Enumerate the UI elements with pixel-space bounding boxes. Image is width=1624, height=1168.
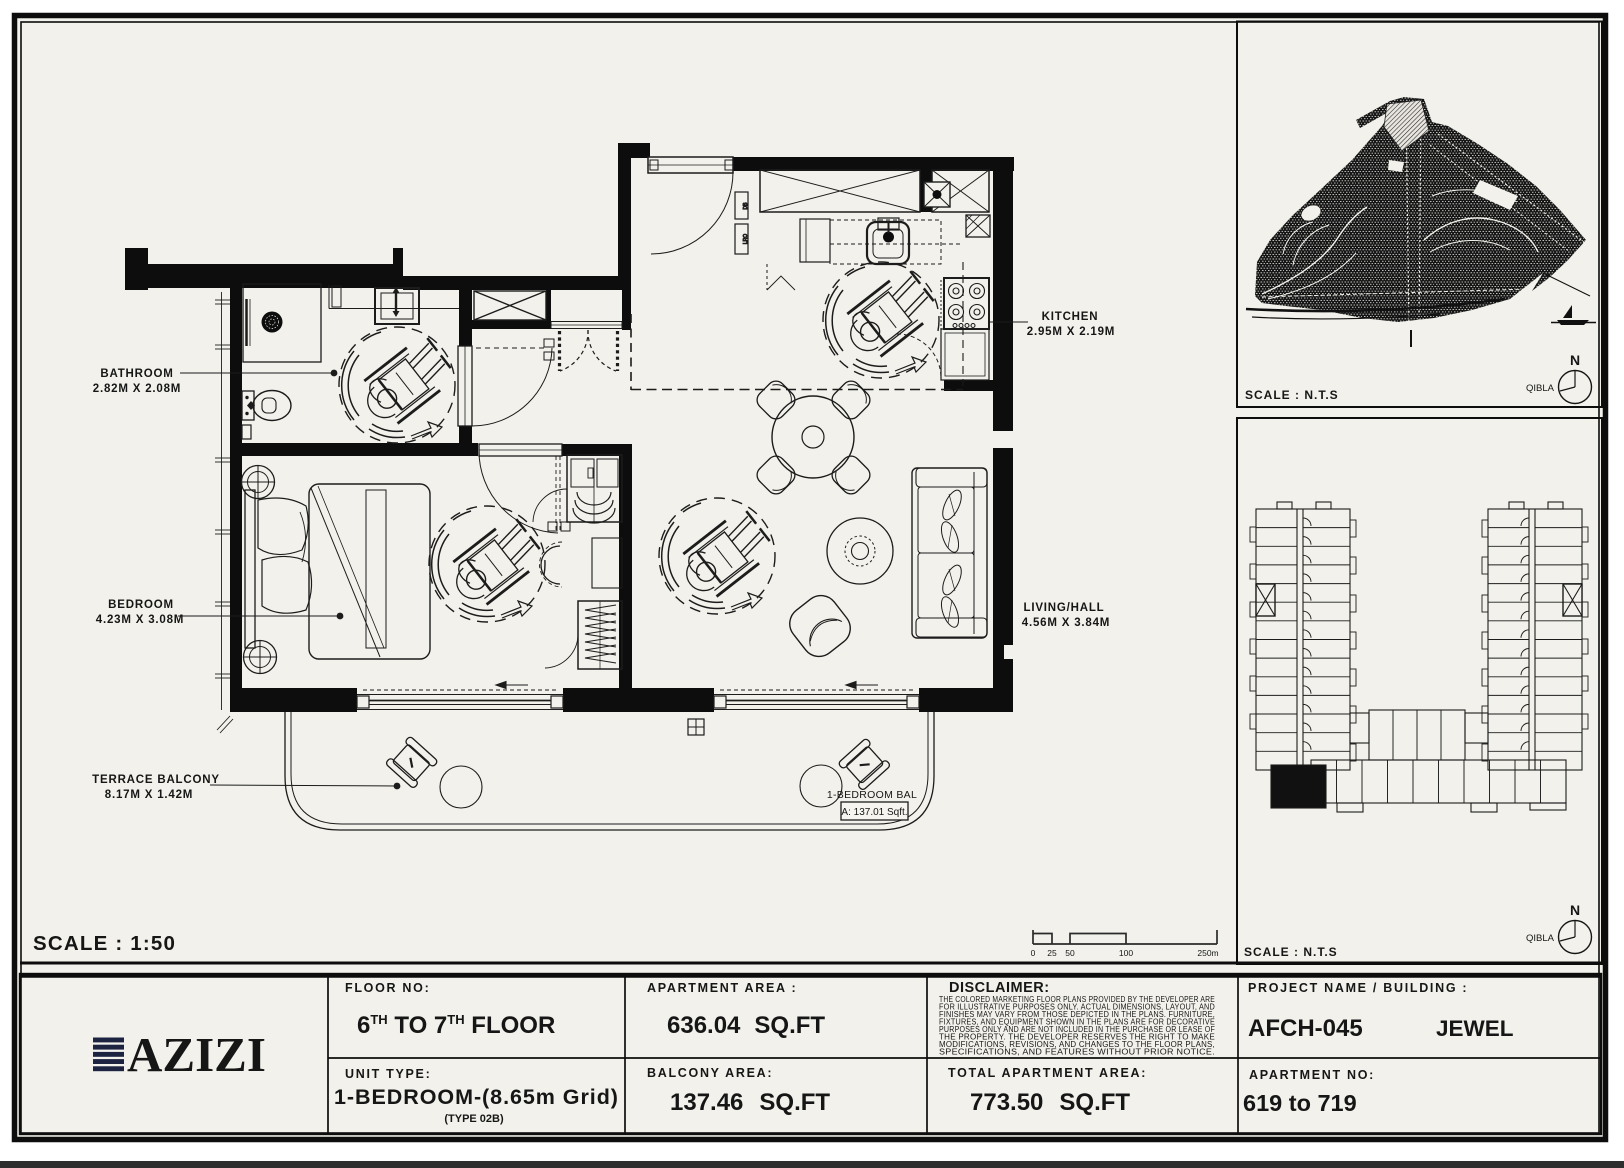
svg-text:0: 0 (1031, 948, 1036, 958)
svg-text:AFCH-045: AFCH-045 (1248, 1015, 1363, 1042)
svg-text:A: 137.01 Sqft.: A: 137.01 Sqft. (841, 807, 907, 818)
svg-text:N: N (1570, 902, 1580, 918)
svg-text:QIBLA: QIBLA (1526, 933, 1555, 944)
svg-text:4.56M X 3.84M: 4.56M X 3.84M (1022, 617, 1110, 629)
svg-text:SCALE : 1:50: SCALE : 1:50 (33, 932, 176, 955)
svg-text:100: 100 (1119, 948, 1133, 958)
svg-text:(TYPE 02B): (TYPE 02B) (444, 1113, 504, 1125)
svg-text:UNIT TYPE:: UNIT TYPE: (345, 1067, 431, 1081)
svg-text:25: 25 (1047, 948, 1057, 958)
svg-text:1-BEDROOM BAL: 1-BEDROOM BAL (827, 789, 917, 801)
svg-text:APARTMENT NO:: APARTMENT NO: (1249, 1068, 1375, 1082)
svg-text:BEDROOM: BEDROOM (108, 599, 174, 611)
svg-text:250m: 250m (1197, 948, 1218, 958)
svg-text:8.17M X 1.42M: 8.17M X 1.42M (105, 789, 193, 801)
svg-text:DISCLAIMER:: DISCLAIMER: (949, 980, 1050, 996)
svg-text:2.82M X 2.08M: 2.82M X 2.08M (93, 383, 181, 395)
svg-text:SCALE : N.T.S: SCALE : N.T.S (1244, 945, 1338, 959)
svg-text:619 to 719: 619 to 719 (1243, 1090, 1357, 1116)
svg-text:JEWEL: JEWEL (1436, 1016, 1514, 1041)
svg-text:QIBLA: QIBLA (1526, 383, 1555, 394)
svg-text:1-BEDROOM-(8.65m Grid): 1-BEDROOM-(8.65m Grid) (334, 1085, 619, 1109)
svg-text:LIVING/HALL: LIVING/HALL (1024, 602, 1105, 614)
svg-text:4.23M X 3.08M: 4.23M X 3.08M (96, 614, 184, 626)
svg-text:SCALE : N.T.S: SCALE : N.T.S (1245, 388, 1339, 402)
svg-text:BATHROOM: BATHROOM (100, 368, 173, 380)
svg-text:APARTMENT AREA :: APARTMENT AREA : (647, 981, 797, 995)
svg-text:BALCONY AREA:: BALCONY AREA: (647, 1066, 773, 1080)
svg-text:2.95M X 2.19M: 2.95M X 2.19M (1027, 326, 1115, 338)
svg-text:KITCHEN: KITCHEN (1042, 311, 1099, 323)
svg-text:FLOOR NO:: FLOOR NO: (345, 981, 430, 995)
svg-text:N: N (1570, 352, 1580, 368)
svg-text:TERRACE BALCONY: TERRACE BALCONY (92, 774, 220, 786)
svg-text:SPECIFICATIONS, AND FEATURES W: SPECIFICATIONS, AND FEATURES WITHOUT PRI… (939, 1048, 1215, 1057)
svg-text:AZIZI: AZIZI (127, 1027, 266, 1082)
svg-text:PROJECT NAME / BUILDING :: PROJECT NAME / BUILDING : (1248, 981, 1468, 995)
svg-text:TOTAL APARTMENT AREA:: TOTAL APARTMENT AREA: (948, 1066, 1147, 1080)
svg-text:50: 50 (1065, 948, 1075, 958)
svg-text:LRO: LRO (743, 234, 749, 244)
svg-text:DB: DB (743, 202, 749, 210)
